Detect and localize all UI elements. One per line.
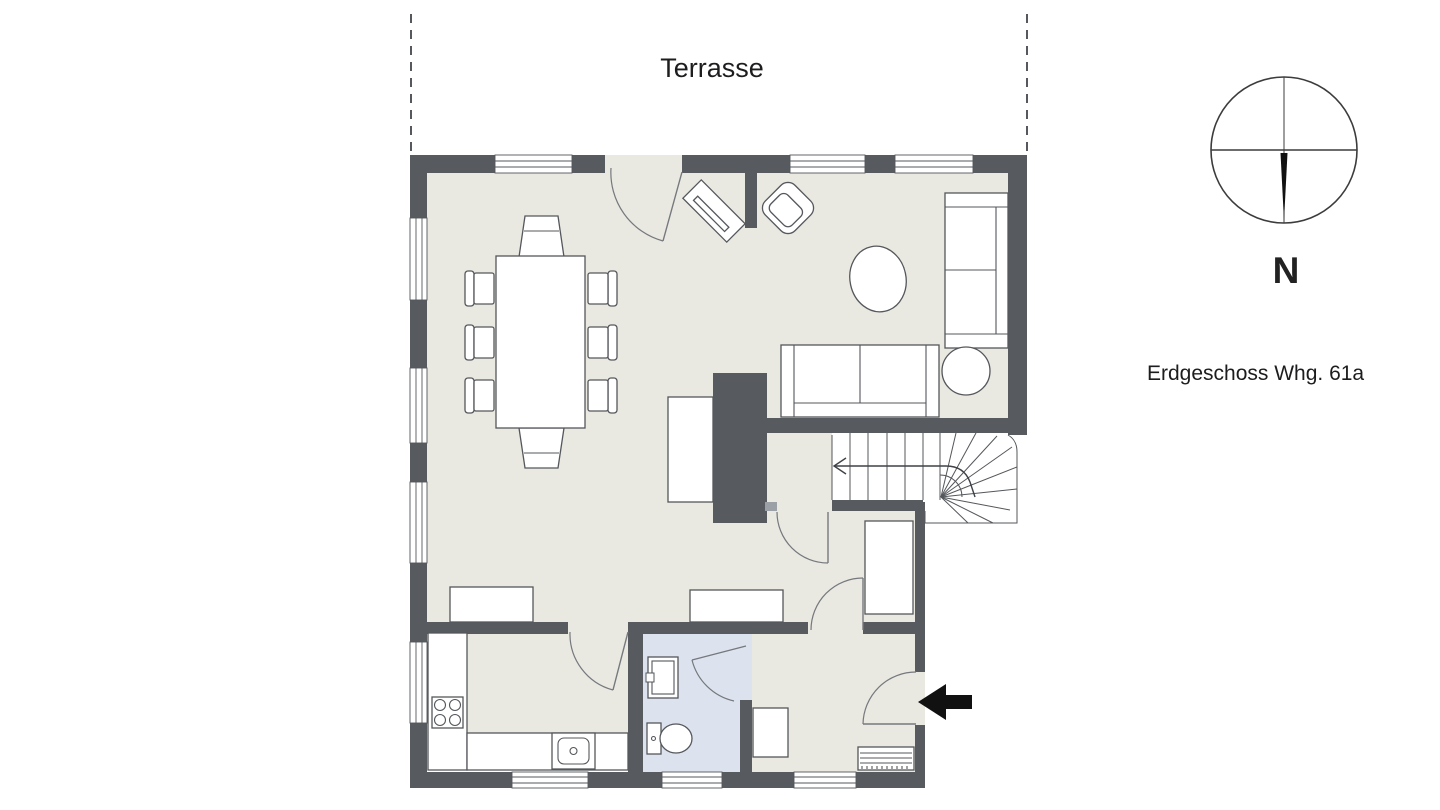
- dining-chair: [519, 216, 564, 257]
- dining-chair: [519, 428, 564, 468]
- terrace-boundary: [411, 14, 1027, 153]
- window: [410, 368, 427, 443]
- compass-needle: [1281, 153, 1288, 221]
- toilet: [647, 723, 692, 754]
- window: [662, 772, 722, 788]
- floor-plan-drawing: Terrasse N Erdgeschoss Whg. 61a: [0, 0, 1440, 810]
- terrace-label: Terrasse: [660, 53, 764, 83]
- window: [410, 218, 427, 300]
- north-label: N: [1273, 250, 1300, 291]
- terrace-door-threshold: [605, 155, 682, 173]
- window: [410, 482, 427, 563]
- kitchen-sink: [552, 733, 595, 769]
- window: [512, 772, 588, 788]
- dining-chair: [465, 378, 494, 413]
- sofa-right: [945, 193, 1008, 348]
- dining-chair: [588, 271, 617, 306]
- shoe-bench: [858, 747, 914, 770]
- dining-chair: [588, 378, 617, 413]
- dining-chair: [465, 271, 494, 306]
- kitchen-counter-bottom: [467, 733, 628, 770]
- side-table: [942, 347, 990, 395]
- wall-stub: [745, 170, 757, 228]
- window: [794, 772, 856, 788]
- dining-chair: [588, 325, 617, 360]
- compass-rose-icon: [1211, 77, 1357, 223]
- sideboard: [450, 587, 533, 622]
- plan-title: Erdgeschoss Whg. 61a: [1147, 362, 1364, 385]
- sofa-bottom: [781, 345, 939, 417]
- dining-chair: [465, 325, 494, 360]
- floor-plan-page: Terrasse N Erdgeschoss Whg. 61a: [0, 0, 1440, 810]
- entry-cabinet: [753, 708, 788, 757]
- window: [895, 155, 973, 173]
- washbasin: [646, 657, 678, 698]
- stove: [432, 697, 463, 728]
- tv-lowboard: [668, 397, 713, 502]
- sideboard: [690, 590, 783, 622]
- window: [495, 155, 572, 173]
- dining-table: [496, 256, 585, 428]
- chimney-block: [713, 373, 767, 523]
- wardrobe: [865, 521, 913, 614]
- window: [790, 155, 865, 173]
- window: [410, 642, 427, 723]
- entrance-arrow-icon: [918, 684, 972, 720]
- door-hinge-pad: [765, 502, 777, 511]
